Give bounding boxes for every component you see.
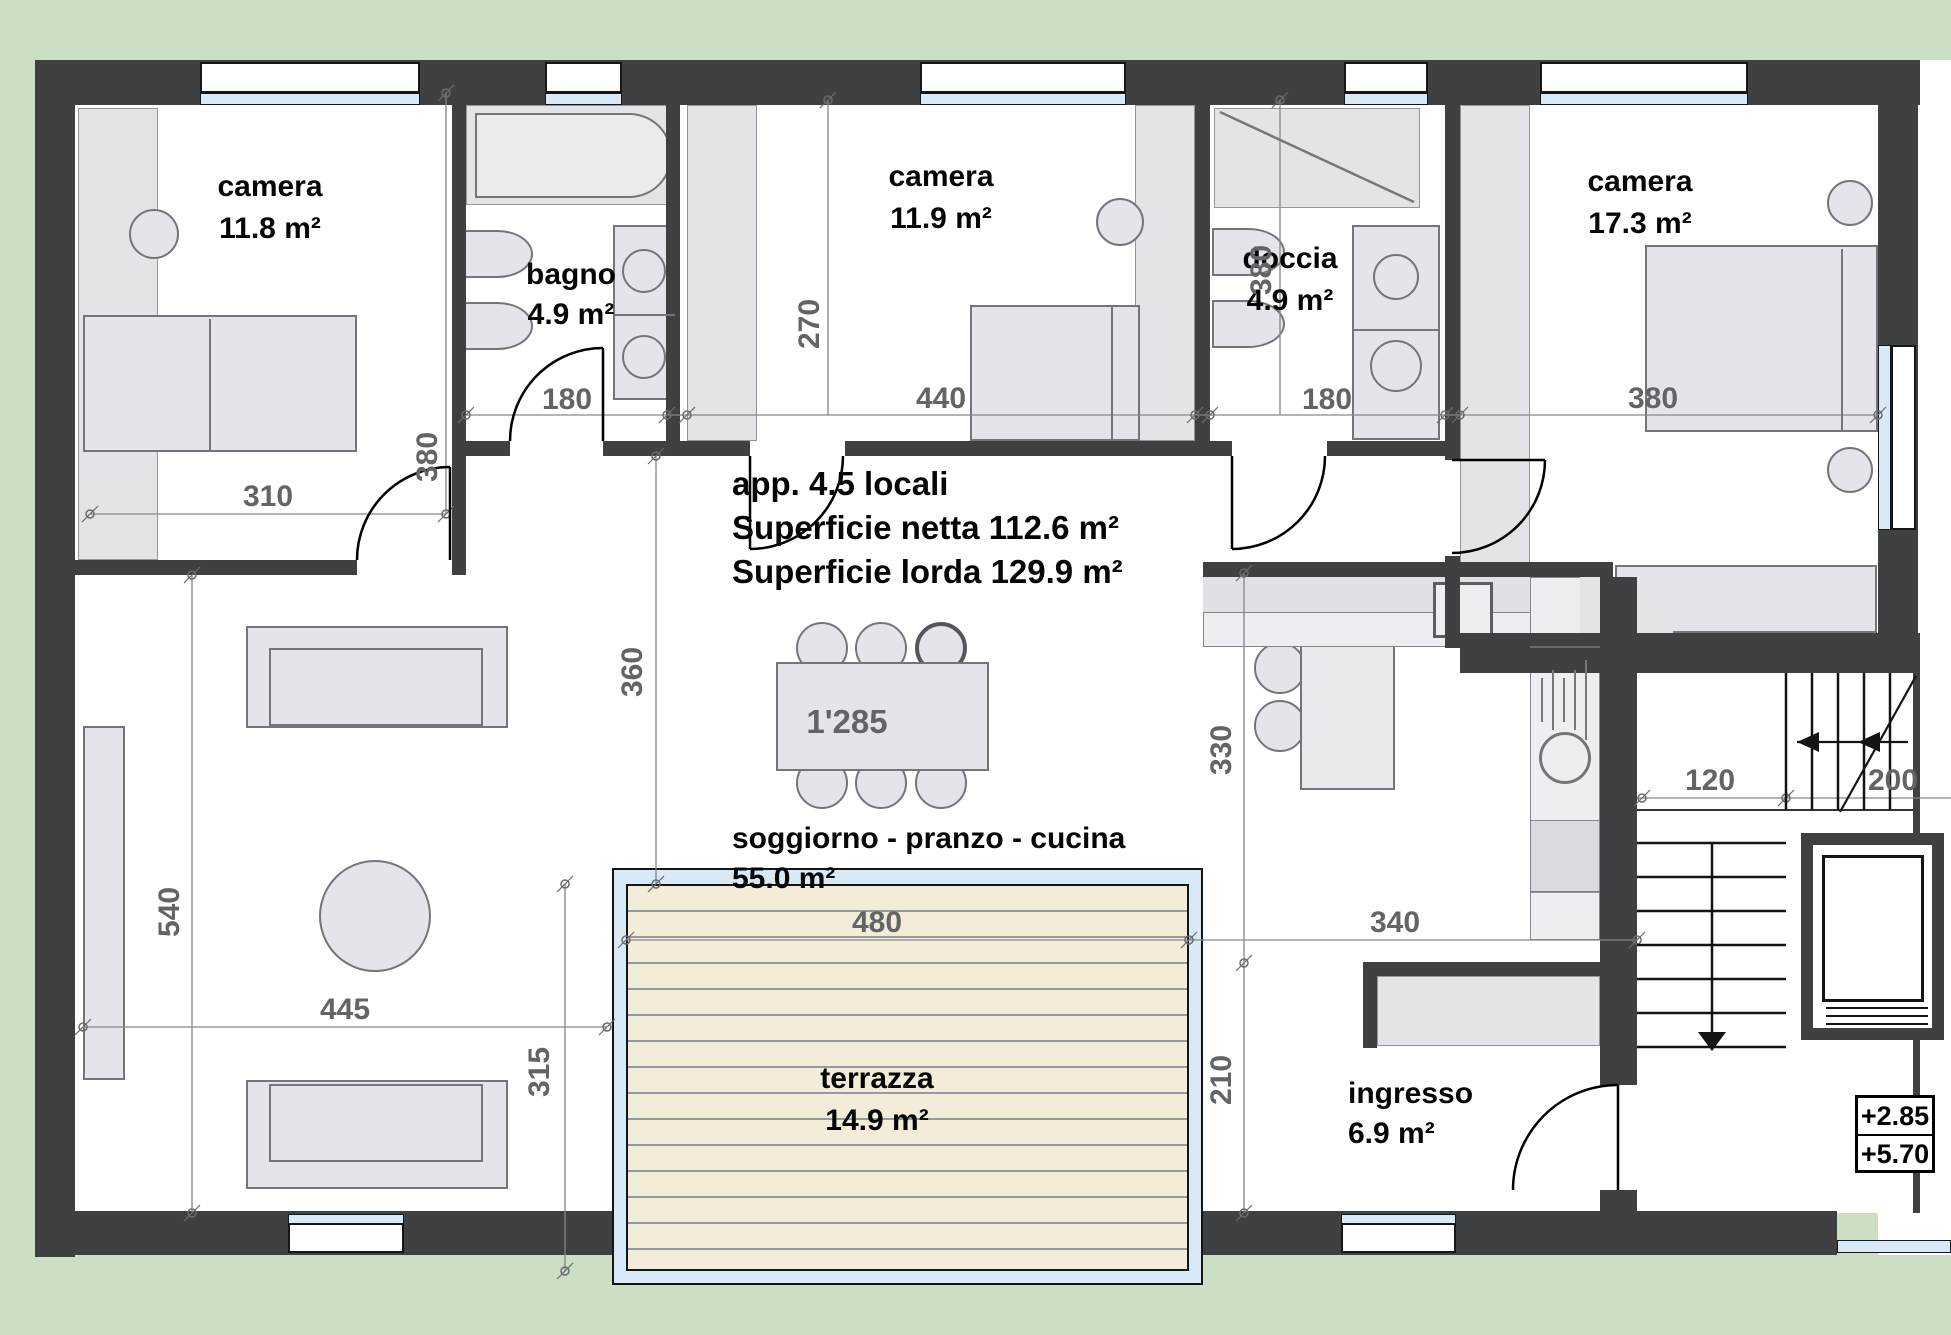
wall bbox=[1203, 562, 1613, 577]
dim-soggiorno-height: 360 bbox=[616, 617, 650, 727]
wall bbox=[845, 441, 1195, 456]
window bbox=[920, 62, 1126, 93]
dim-ingresso-height: 210 bbox=[1205, 1025, 1239, 1135]
bar-stool bbox=[1254, 700, 1306, 752]
dim-kitchen-height: 330 bbox=[1205, 695, 1239, 805]
entry-wardrobe bbox=[1377, 976, 1600, 1046]
room-label-bagno: bagno bbox=[471, 258, 671, 292]
dim-table: 1'285 bbox=[787, 703, 907, 741]
wall bbox=[452, 105, 466, 575]
elevator-car bbox=[1822, 855, 1924, 1002]
dim-camera3-width: 380 bbox=[1593, 382, 1713, 416]
window bbox=[1344, 62, 1428, 93]
dim-stair-width: 120 bbox=[1650, 764, 1770, 798]
window bbox=[200, 62, 420, 93]
room-area-terrazza: 14.9 m² bbox=[757, 1104, 997, 1138]
room-area-soggiorno: 55.0 m² bbox=[732, 862, 835, 896]
wardrobe bbox=[1135, 105, 1195, 441]
window bbox=[545, 62, 622, 93]
wall bbox=[1460, 633, 1920, 673]
net-area: Superficie netta 112.6 m² bbox=[732, 509, 1119, 547]
nightstand bbox=[1827, 447, 1873, 493]
dim-terrazza-height: 315 bbox=[523, 1017, 557, 1127]
cabinet bbox=[83, 726, 125, 1080]
dim-living-height: 540 bbox=[153, 857, 187, 967]
window bbox=[1891, 345, 1916, 530]
wall bbox=[603, 441, 680, 456]
level-upper: +2.85 bbox=[1858, 1098, 1932, 1136]
room-label-camera3: camera bbox=[1520, 165, 1760, 199]
floor-plan: camera 11.8 m² bagno 4.9 m² camera 11.9 … bbox=[0, 0, 1951, 1335]
dim-ingresso-width: 340 bbox=[1335, 906, 1455, 940]
wall bbox=[75, 560, 357, 575]
window-sill bbox=[920, 93, 1126, 105]
bed bbox=[970, 305, 1140, 441]
wall bbox=[1327, 441, 1460, 456]
dim-camera2-width: 440 bbox=[881, 382, 1001, 416]
dim-camera1-width: 310 bbox=[208, 480, 328, 514]
window-sill bbox=[545, 93, 622, 105]
room-label-ingresso: ingresso bbox=[1348, 1077, 1473, 1111]
window-sill bbox=[1344, 93, 1428, 105]
sofa-seat bbox=[269, 1084, 483, 1162]
dim-stair-depth: 200 bbox=[1833, 764, 1951, 798]
wall bbox=[1203, 1211, 1837, 1255]
bidet bbox=[622, 335, 666, 379]
room-label-doccia: doccia bbox=[1190, 242, 1390, 276]
window-sill bbox=[1878, 345, 1891, 530]
room-area-ingresso: 6.9 m² bbox=[1348, 1117, 1435, 1151]
window-sill bbox=[1540, 93, 1748, 105]
wall bbox=[1600, 577, 1637, 1085]
dim-bagno-width: 180 bbox=[507, 383, 627, 417]
dim-doccia-width: 180 bbox=[1267, 383, 1387, 417]
cooktop bbox=[1433, 582, 1493, 638]
shower-tray bbox=[1214, 108, 1420, 208]
kitchen-sink bbox=[1539, 732, 1591, 784]
dim-terrazza-width: 480 bbox=[817, 906, 937, 940]
apartment-title: app. 4.5 locali bbox=[732, 465, 948, 503]
dim-camera2-height: 270 bbox=[793, 269, 827, 379]
entry-wardrobe-frame bbox=[1363, 962, 1605, 976]
room-area-camera1: 11.8 m² bbox=[150, 212, 390, 246]
wall bbox=[35, 60, 75, 1257]
bar-stool bbox=[1254, 642, 1306, 694]
dim-camera1-height: 380 bbox=[411, 402, 445, 512]
level-lower: +5.70 bbox=[1858, 1136, 1932, 1172]
gross-area: Superficie lorda 129.9 m² bbox=[732, 553, 1123, 591]
wall bbox=[1445, 105, 1460, 460]
wall bbox=[1195, 105, 1210, 456]
room-label-soggiorno: soggiorno - pranzo - cucina bbox=[732, 822, 1125, 856]
bed bbox=[83, 315, 357, 452]
chair bbox=[1096, 198, 1144, 246]
room-label-camera1: camera bbox=[150, 170, 390, 204]
entry-wardrobe-frame bbox=[1363, 962, 1377, 1048]
elevation-levels: +2.85 +5.70 bbox=[1855, 1095, 1935, 1173]
dishwasher bbox=[1530, 820, 1600, 892]
window bbox=[1540, 62, 1748, 93]
room-area-bagno: 4.9 m² bbox=[471, 298, 671, 332]
room-area-camera3: 17.3 m² bbox=[1520, 207, 1760, 241]
nightstand bbox=[1827, 180, 1873, 226]
wall bbox=[680, 441, 750, 456]
room-label-camera2: camera bbox=[821, 160, 1061, 194]
wall bbox=[452, 441, 510, 456]
window bbox=[1341, 1223, 1456, 1253]
coffee-table bbox=[319, 860, 431, 972]
room-label-terrazza: terrazza bbox=[757, 1062, 997, 1096]
wall bbox=[1195, 441, 1232, 456]
sofa-seat bbox=[269, 648, 483, 726]
room-area-camera2: 11.9 m² bbox=[821, 202, 1061, 236]
window-sill bbox=[200, 93, 420, 105]
room-area-doccia: 4.9 m² bbox=[1190, 284, 1390, 318]
dim-living-width: 445 bbox=[285, 993, 405, 1027]
wardrobe bbox=[687, 105, 757, 441]
window bbox=[288, 1223, 404, 1253]
bathtub bbox=[475, 113, 672, 198]
wall bbox=[1600, 1190, 1637, 1213]
dim-camera3-height: 380 bbox=[1245, 215, 1279, 325]
glass-rail bbox=[1837, 1240, 1951, 1253]
